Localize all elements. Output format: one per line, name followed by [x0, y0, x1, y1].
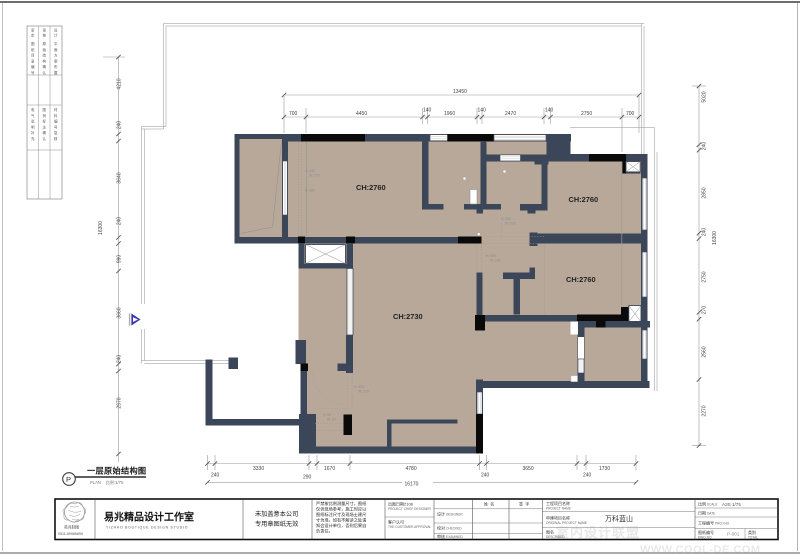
svg-text:4780: 4780 — [406, 466, 417, 472]
svg-text:注: 注 — [43, 124, 47, 129]
svg-text:TOTAL: TOTAL — [748, 536, 758, 540]
svg-text:CH:2760: CH:2760 — [566, 275, 596, 284]
svg-text:工程项目名称: 工程项目名称 — [546, 500, 570, 506]
svg-text:240: 240 — [211, 473, 220, 479]
svg-text:结: 结 — [43, 53, 47, 58]
svg-text:确: 确 — [43, 130, 47, 135]
svg-text:类别: 类别 — [748, 529, 756, 535]
svg-text:标: 标 — [43, 119, 47, 124]
svg-text:W: 20: W: 20 — [327, 418, 336, 422]
svg-text:定: 定 — [31, 33, 35, 38]
svg-text:2970: 2970 — [116, 397, 122, 408]
svg-text:号: 号 — [54, 124, 58, 129]
svg-text:PROJECT NAME: PROJECT NAME — [546, 507, 571, 511]
svg-text:H: 500: H: 500 — [354, 385, 364, 389]
svg-text:DESIGNER: DESIGNER — [446, 513, 463, 517]
svg-text:H: 240: H: 240 — [305, 169, 315, 173]
svg-text:图名: 图名 — [546, 529, 554, 535]
svg-text:1960: 1960 — [444, 111, 455, 117]
svg-text:W: 200: W: 200 — [505, 222, 516, 226]
svg-text:编: 编 — [54, 119, 58, 124]
svg-text:复: 复 — [54, 130, 58, 135]
svg-text:出图日期2108: 出图日期2108 — [388, 501, 414, 507]
svg-text:方: 方 — [54, 53, 58, 58]
svg-text:核: 核 — [43, 33, 47, 38]
svg-text:PROJ.NO: PROJ.NO — [715, 522, 730, 526]
svg-text:室内设计联盟: 室内设计联盟 — [556, 525, 640, 540]
svg-text:布: 布 — [54, 64, 58, 69]
svg-text:16300: 16300 — [98, 221, 104, 235]
svg-text:3330: 3330 — [253, 466, 264, 472]
svg-text:平: 平 — [54, 42, 58, 46]
svg-text:2470: 2470 — [505, 111, 516, 117]
svg-text:目: 目 — [31, 53, 35, 58]
svg-text:240: 240 — [481, 473, 490, 479]
svg-text:CHECKED: CHECKED — [446, 527, 462, 531]
svg-text:认: 认 — [43, 136, 47, 141]
svg-text:构: 构 — [43, 58, 47, 63]
svg-text:比例: 比例 — [698, 501, 706, 507]
svg-text:一层原始结构图: 一层原始结构图 — [87, 466, 146, 476]
svg-text:图: 图 — [31, 42, 35, 46]
svg-text:1670: 1670 — [324, 466, 335, 472]
svg-text:3650: 3650 — [523, 466, 534, 472]
svg-text:290: 290 — [303, 475, 312, 481]
svg-text:电: 电 — [31, 107, 35, 112]
svg-text:确: 确 — [43, 64, 47, 69]
svg-text:240: 240 — [702, 228, 708, 237]
svg-text:说: 说 — [31, 119, 35, 124]
svg-text:录: 录 — [31, 58, 35, 63]
svg-text:姓 名: 姓 名 — [484, 501, 494, 507]
svg-text:日期: 日期 — [698, 510, 706, 516]
svg-text:240: 240 — [702, 142, 708, 151]
svg-text:DATE: DATE — [707, 512, 715, 516]
svg-text:H: 500: H: 500 — [486, 254, 496, 258]
svg-text:140: 140 — [423, 108, 432, 114]
svg-text:核: 核 — [54, 136, 58, 141]
svg-text:700: 700 — [626, 111, 635, 117]
svg-text:240: 240 — [116, 121, 122, 130]
svg-text:SCALE: SCALE — [707, 503, 717, 507]
svg-text:客户认可: 客户认可 — [388, 519, 404, 525]
svg-text:CH:2730: CH:2730 — [393, 312, 423, 321]
svg-text:编: 编 — [31, 64, 35, 69]
svg-text:补: 补 — [31, 130, 35, 135]
svg-text:YIZHAO BOUTIQUE DESIGN STUDIO: YIZHAO BOUTIQUE DESIGN STUDIO — [106, 526, 188, 530]
svg-text:13450: 13450 — [453, 89, 467, 95]
svg-text:图纸编号: 图纸编号 — [698, 529, 714, 535]
svg-text:万科蓝山: 万科蓝山 — [605, 514, 633, 523]
svg-text:材: 材 — [54, 107, 58, 112]
svg-text:EXAMINED: EXAMINED — [446, 535, 463, 539]
svg-text:易兆精品设计工作室: 易兆精品设计工作室 — [104, 511, 194, 524]
svg-text:2560: 2560 — [702, 346, 708, 357]
svg-text:1730: 1730 — [599, 466, 610, 472]
svg-text:270: 270 — [702, 306, 708, 315]
svg-text:置: 置 — [54, 70, 58, 75]
svg-text:申建项目名称: 申建项目名称 — [546, 515, 570, 521]
svg-text:CH:2760: CH:2760 — [356, 183, 386, 192]
svg-text:认: 认 — [43, 70, 47, 75]
svg-text:PROJECT CHIEF DESIGNER: PROJECT CHIEF DESIGNER — [388, 507, 431, 511]
svg-text:CH:2760: CH:2760 — [569, 195, 599, 204]
svg-text:号: 号 — [31, 70, 35, 75]
svg-text:W: 270: W: 270 — [309, 174, 320, 178]
svg-text:审: 审 — [31, 28, 35, 33]
svg-text:990: 990 — [116, 255, 122, 264]
svg-text:纸: 纸 — [31, 47, 35, 52]
svg-text:140: 140 — [545, 108, 554, 114]
svg-text:设: 设 — [54, 28, 58, 33]
svg-text:料: 料 — [54, 113, 58, 118]
svg-text:负责任。: 负责任。 — [316, 528, 333, 535]
svg-text:始: 始 — [43, 47, 47, 52]
svg-text:签 字: 签 字 — [519, 501, 529, 507]
svg-text:0511-89985899: 0511-89985899 — [58, 532, 83, 536]
svg-text:未加盖意本公司: 未加盖意本公司 — [255, 510, 298, 518]
svg-text:明: 明 — [31, 125, 35, 129]
svg-text:充: 充 — [31, 136, 35, 141]
svg-text:P-001: P-001 — [727, 532, 740, 537]
svg-text:图: 图 — [43, 108, 47, 112]
svg-text:5020: 5020 — [702, 91, 708, 102]
svg-text:W: 200: W: 200 — [490, 259, 501, 263]
svg-text:THE CUSTOMER APPROVAL: THE CUSTOMER APPROVAL — [388, 525, 431, 529]
svg-text:原: 原 — [43, 41, 47, 46]
svg-text:3640: 3640 — [116, 172, 122, 183]
svg-text:面: 面 — [54, 47, 58, 52]
svg-text:240: 240 — [116, 355, 122, 364]
svg-text:4210: 4210 — [116, 78, 122, 89]
svg-text:审: 审 — [43, 28, 47, 33]
svg-text:4450: 4450 — [356, 111, 367, 117]
svg-text:W: 230: W: 230 — [358, 390, 369, 394]
svg-text:H: 530: H: 530 — [501, 217, 511, 221]
svg-text:2750: 2750 — [581, 111, 592, 117]
svg-text:WWW.COOL-DE.COM: WWW.COOL-DE.COM — [640, 544, 761, 556]
svg-text:240: 240 — [583, 473, 592, 479]
svg-text:案: 案 — [54, 58, 58, 63]
svg-text:易兆制图: 易兆制图 — [64, 525, 79, 530]
svg-text:审核: 审核 — [437, 533, 445, 539]
svg-text:工程编号: 工程编号 — [698, 520, 714, 526]
svg-text:气: 气 — [31, 113, 35, 118]
svg-text:3660: 3660 — [116, 307, 122, 318]
svg-text:设计: 设计 — [437, 511, 445, 517]
svg-text:700: 700 — [289, 111, 298, 117]
svg-text:例: 例 — [43, 113, 47, 118]
svg-text:2270: 2270 — [702, 405, 708, 416]
svg-text:16300: 16300 — [712, 231, 718, 245]
svg-text:240: 240 — [116, 217, 122, 226]
svg-text:2850: 2850 — [702, 187, 708, 198]
svg-text:计: 计 — [54, 33, 58, 38]
svg-text:H: 55: H: 55 — [323, 413, 331, 417]
svg-text:校对: 校对 — [437, 525, 445, 531]
svg-text:专用章图纸无效: 专用章图纸无效 — [255, 520, 298, 528]
svg-text:H: 300: H: 300 — [305, 189, 315, 193]
svg-text:DWG.NO: DWG.NO — [698, 536, 712, 540]
svg-text:PLAN 比例:1/75: PLAN 比例:1/75 — [90, 479, 124, 486]
svg-text:140: 140 — [478, 108, 487, 114]
svg-text:A3S 1/75: A3S 1/75 — [722, 502, 741, 507]
svg-text:2750: 2750 — [702, 271, 708, 282]
svg-text:16170: 16170 — [405, 481, 419, 487]
svg-text:P: P — [66, 475, 71, 484]
